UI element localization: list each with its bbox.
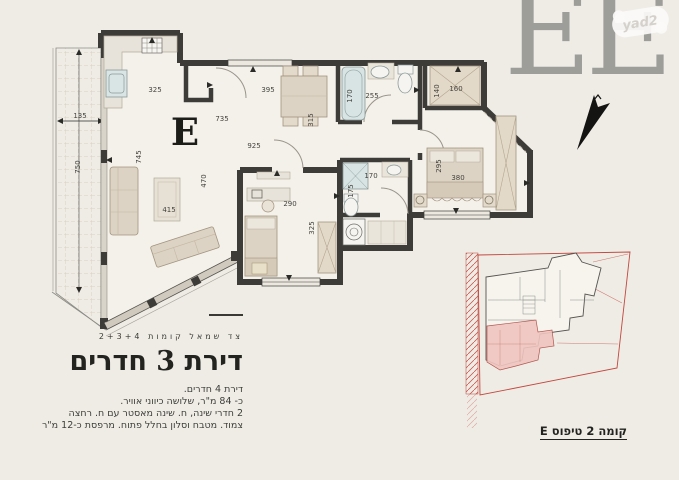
dim-dining: 395: [261, 86, 274, 94]
key-plan: [466, 252, 630, 428]
dim-bath2-width: 170: [364, 172, 377, 180]
dim-dining-depth: 315: [307, 113, 315, 126]
divider: [209, 314, 243, 316]
dim-master-depth: 295: [435, 159, 443, 172]
dim-bath2-depth: 175: [347, 184, 355, 197]
dim-kitchen: 325: [148, 86, 161, 94]
dim-rug: 415: [162, 206, 175, 214]
dim-bedroom2-depth: 325: [308, 221, 316, 234]
key-plan-caption: קומה 2 טיפוס E: [540, 424, 627, 440]
dim-balcony-length: 750: [74, 160, 82, 173]
listing-details: דירת 4 חדרים. כ- 84 מ"ר, שלושה כיווני או…: [33, 384, 243, 432]
dim-closet-width: 160: [449, 85, 462, 93]
dim-living-width: 470: [200, 174, 208, 187]
laundry-nook: [343, 219, 406, 245]
north-arrow-icon: [577, 95, 610, 150]
dim-balcony-width: 135: [73, 112, 86, 120]
listing-description: צד שמאל קומות 2+3+4 דירת 3 חדרים דירת 4 …: [33, 314, 243, 432]
dim-tub: 170: [346, 89, 354, 102]
floors-line: צד שמאל קומות 2+3+4: [33, 332, 243, 341]
detail-line: כ- 84 מ"ר, שלושה כיווני אוויר.: [33, 396, 243, 408]
listing-title: דירת 3 חדרים: [33, 348, 243, 375]
detail-line: צמוד. מטבח וסלון בחלל פתוח. מרפסת כ-12 מ…: [33, 420, 243, 432]
dim-entry-hall: 735: [215, 115, 228, 123]
unit-letter: E: [171, 110, 199, 154]
detail-line: 2 חדרי שינה, ח. שינה מאסטר עם ח. רחצה: [33, 408, 243, 420]
page: EE yad2: [0, 0, 679, 480]
dim-wc: 255: [365, 92, 378, 100]
dim-bedroom2-width: 290: [283, 200, 296, 208]
dim-hallway: 925: [247, 142, 260, 150]
dim-living-length: 745: [135, 150, 143, 163]
dim-closet-depth: 140: [433, 84, 441, 97]
detail-line: דירת 4 חדרים.: [33, 384, 243, 396]
dim-master-width: 380: [451, 174, 464, 182]
